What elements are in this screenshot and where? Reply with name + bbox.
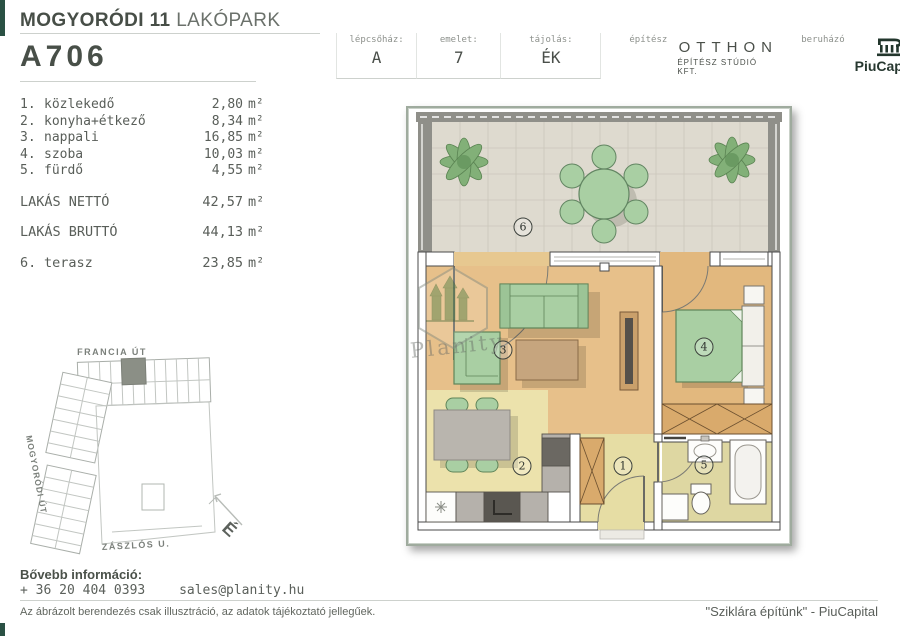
room-no: 4.	[20, 147, 44, 164]
project-title: MOGYORÓDI 11 LAKÓPARK	[20, 10, 280, 32]
room-unit: m²	[243, 114, 272, 131]
info-cell-orientation: tájolás: ÉK	[500, 33, 601, 79]
room-marker-6: 6	[514, 218, 533, 237]
info-cell-developer: beruházó PiuCapital	[801, 33, 900, 79]
gross-area-row: LAKÁS BRUTTÓ 44,13 m²	[20, 224, 272, 241]
developer-name: PiuCapital	[855, 58, 900, 74]
corner-accent-bar-bottom	[0, 623, 5, 636]
street-label-bottom: ZÁSZLÓS U.	[102, 537, 171, 552]
room-area: 2,80	[193, 97, 243, 114]
terrace-name: terasz	[44, 255, 193, 272]
sofa	[500, 284, 600, 338]
project-title-bold: MOGYORÓDI 11	[20, 10, 171, 31]
info-cell-floor: emelet: 7	[416, 33, 500, 79]
room-marker-2: 2	[513, 457, 532, 476]
net-area: 42,57	[193, 194, 243, 211]
room-unit: m²	[243, 130, 272, 147]
floorplan-sheet: MOGYORÓDI 11 LAKÓPARK A706 lépcsőház: A …	[0, 0, 900, 636]
architect-name: OTTHON	[679, 39, 778, 56]
room-name: nappali	[44, 130, 193, 147]
slogan-text: "Sziklára építünk" - PiuCapital	[705, 604, 878, 619]
floor-plan-drawing	[408, 108, 790, 544]
entry-door-opening	[598, 522, 644, 530]
room-marker-1: 1	[614, 457, 633, 476]
net-unit: m²	[243, 194, 272, 211]
room-name: fürdő	[44, 163, 193, 180]
orientation-value: ÉK	[541, 48, 560, 67]
room-area: 4,55	[193, 163, 243, 180]
room-area: 8,34	[193, 114, 243, 131]
highlighted-unit	[121, 358, 146, 385]
room-unit: m²	[243, 163, 272, 180]
net-area-row: LAKÁS NETTÓ 42,57 m²	[20, 194, 272, 211]
developer-label: beruházó	[801, 35, 844, 45]
email-address: sales@planity.hu	[179, 583, 304, 598]
room-name: konyha+étkező	[44, 114, 193, 131]
site-courtyard	[96, 402, 215, 544]
site-plan: FRANCIA ÚT	[16, 344, 256, 562]
floor-value: 7	[454, 48, 464, 67]
contact-row: + 36 20 404 0393 sales@planity.hu	[20, 583, 304, 598]
terrace-row: 6. terasz 23,85 m²	[20, 255, 272, 272]
room-no: 5.	[20, 163, 44, 180]
gross-area: 44,13	[193, 224, 243, 241]
plant-icon	[440, 138, 488, 186]
washing-machine	[662, 494, 688, 520]
room-row: 2. konyha+étkező 8,34 m²	[20, 114, 272, 131]
floor-label: emelet:	[440, 35, 478, 45]
room-area: 10,03	[193, 147, 243, 164]
tv-cabinet	[620, 312, 638, 390]
terrace	[416, 112, 782, 252]
room-area: 16,85	[193, 130, 243, 147]
unit-id-divider	[20, 81, 256, 82]
footer-divider	[20, 600, 878, 601]
architect-subtitle: ÉPÍTÉSZ STÚDIÓ KFT.	[677, 58, 779, 76]
unit-id: A706	[20, 40, 108, 74]
orientation-label: tájolás:	[529, 35, 572, 45]
coffee-table	[516, 340, 586, 388]
room-unit: m²	[243, 147, 272, 164]
terrace-area: 23,85	[193, 255, 243, 272]
room-marker-5: 5	[695, 456, 714, 475]
staircase-value: A	[372, 48, 382, 67]
piucapital-logo-icon	[874, 35, 900, 57]
street-label-top: FRANCIA ÚT	[77, 346, 147, 357]
info-cell-staircase: lépcsőház: A	[336, 33, 416, 79]
gross-unit: m²	[243, 224, 272, 241]
room-row: 3. nappali 16,85 m²	[20, 130, 272, 147]
unit-info-table: lépcsőház: A emelet: 7 tájolás: ÉK építé…	[336, 33, 900, 79]
gross-label: LAKÁS BRUTTÓ	[20, 224, 193, 241]
entry-mat	[600, 530, 644, 539]
phone-number: + 36 20 404 0393	[20, 583, 145, 598]
room-name: szoba	[44, 147, 193, 164]
plant-icon	[709, 137, 755, 183]
nightstand	[744, 286, 764, 304]
room-row: 4. szoba 10,03 m²	[20, 147, 272, 164]
bed	[676, 306, 764, 388]
room-unit: m²	[243, 97, 272, 114]
corner-accent-bar-top	[0, 0, 5, 36]
info-cell-architect: építész OTTHON ÉPÍTÉSZ STÚDIÓ KFT.	[629, 33, 779, 79]
room-no: 2.	[20, 114, 44, 131]
room-marker-3: 3	[494, 341, 513, 360]
room-name: közlekedő	[44, 97, 193, 114]
nightstand	[744, 388, 764, 406]
room-marker-4: 4	[695, 338, 714, 357]
terrace-unit: m²	[243, 255, 272, 272]
title-divider	[20, 33, 320, 34]
room-no: 3.	[20, 130, 44, 147]
terrace-no: 6.	[20, 255, 44, 272]
floor-plan: Planity 1 2 3 4 5 6	[406, 106, 792, 546]
toilet	[691, 484, 711, 514]
net-label: LAKÁS NETTÓ	[20, 194, 193, 211]
more-info-label: Bővebb információ:	[20, 567, 142, 582]
bathtub	[730, 440, 766, 504]
room-row: 1. közlekedő 2,80 m²	[20, 97, 272, 114]
architect-label: építész	[629, 35, 667, 45]
bedroom-wardrobe	[662, 404, 772, 434]
project-title-regular: LAKÓPARK	[176, 10, 280, 31]
disclaimer-text: Az ábrázolt berendezés csak illusztráció…	[20, 606, 375, 618]
hall-wardrobe	[580, 438, 604, 504]
room-no: 1.	[20, 97, 44, 114]
room-row: 5. fürdő 4,55 m²	[20, 163, 272, 180]
staircase-label: lépcsőház:	[350, 35, 404, 45]
room-area-list: 1. közlekedő 2,80 m² 2. konyha+étkező 8,…	[20, 97, 272, 271]
